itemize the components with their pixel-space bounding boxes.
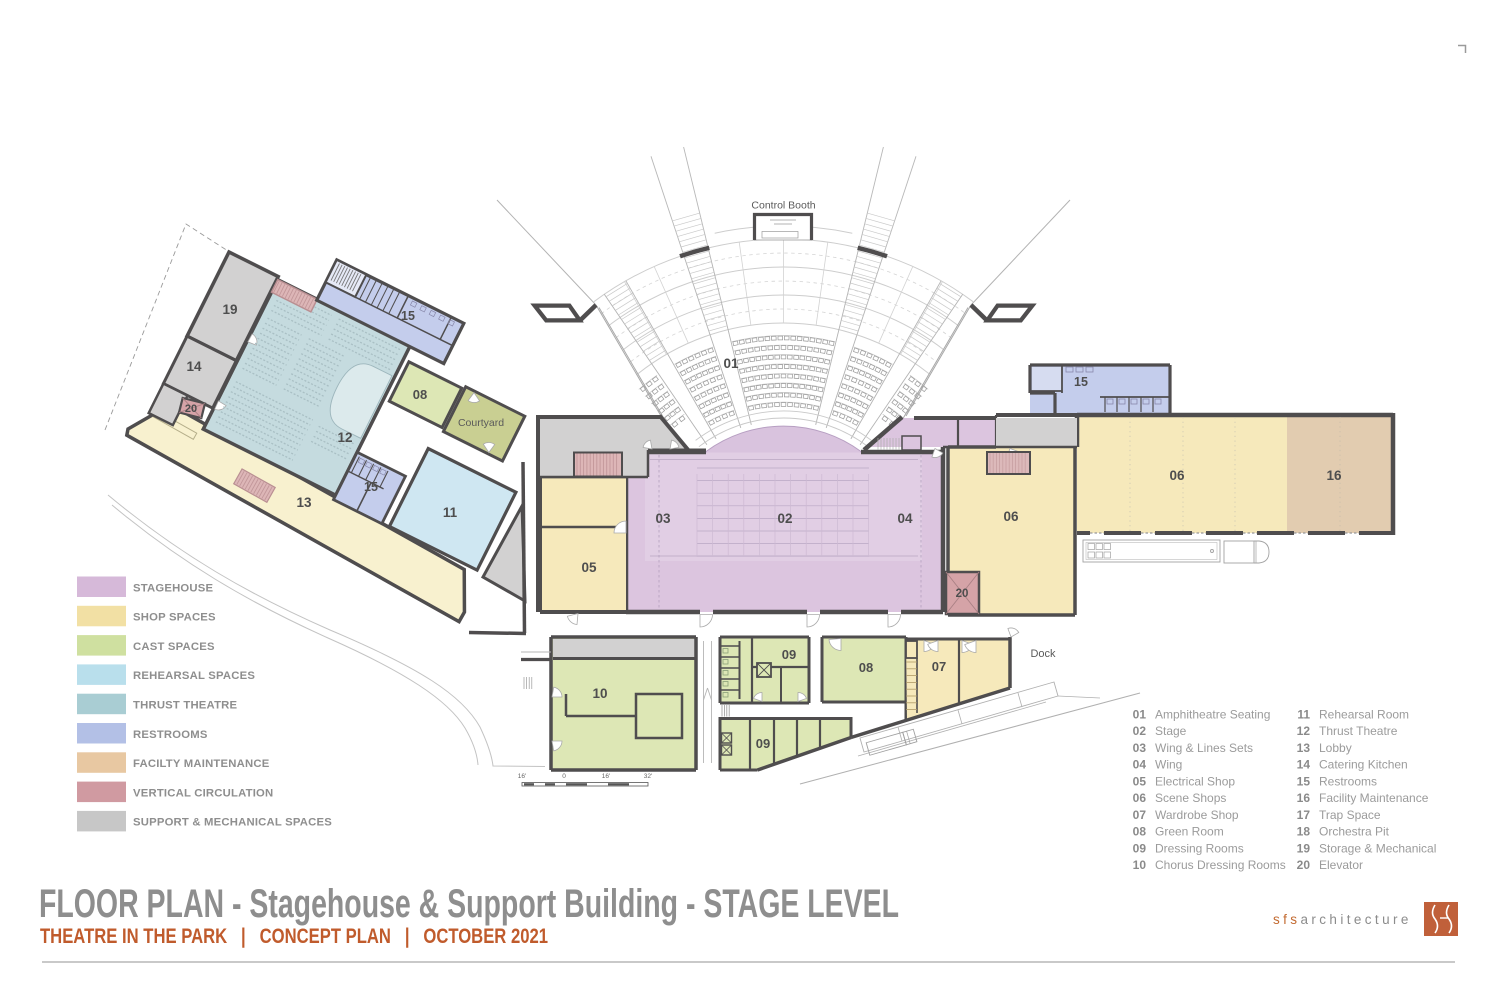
svg-text:07: 07 — [1133, 808, 1147, 822]
svg-text:15: 15 — [401, 309, 415, 323]
svg-text:VERTICAL CIRCULATION: VERTICAL CIRCULATION — [133, 787, 273, 799]
svg-text:14: 14 — [186, 359, 202, 374]
svg-text:20: 20 — [185, 403, 197, 415]
svg-text:Rehearsal Room: Rehearsal Room — [1319, 708, 1409, 722]
svg-text:Green Room: Green Room — [1155, 825, 1224, 839]
svg-text:RESTROOMS: RESTROOMS — [133, 729, 208, 741]
svg-text:STAGEHOUSE: STAGEHOUSE — [133, 582, 214, 594]
svg-text:Electrical Shop: Electrical Shop — [1155, 774, 1235, 788]
svg-text:16: 16 — [1297, 791, 1311, 805]
svg-text:15: 15 — [1074, 375, 1088, 389]
svg-text:Elevator: Elevator — [1319, 858, 1363, 872]
svg-text:16': 16' — [518, 773, 526, 780]
svg-text:06: 06 — [1169, 468, 1185, 483]
svg-text:Scene Shops: Scene Shops — [1155, 791, 1226, 805]
svg-text:15: 15 — [1297, 774, 1311, 788]
svg-text:32': 32' — [644, 773, 652, 780]
svg-text:11: 11 — [1297, 708, 1310, 722]
svg-text:REHEARSAL SPACES: REHEARSAL SPACES — [133, 670, 255, 682]
svg-text:sfsarchitecture: sfsarchitecture — [1273, 912, 1412, 927]
svg-text:Catering Kitchen: Catering Kitchen — [1319, 758, 1408, 772]
svg-text:01: 01 — [723, 356, 739, 371]
svg-text:Orchestra Pit: Orchestra Pit — [1319, 825, 1390, 839]
svg-text:06: 06 — [1003, 509, 1019, 524]
svg-text:19: 19 — [1297, 841, 1311, 855]
svg-text:Amphitheatre Seating: Amphitheatre Seating — [1155, 708, 1270, 722]
svg-text:Stage: Stage — [1155, 724, 1187, 738]
svg-text:03: 03 — [1133, 741, 1147, 755]
svg-text:17: 17 — [1297, 808, 1311, 822]
svg-text:01: 01 — [1133, 708, 1147, 722]
svg-text:08: 08 — [1133, 825, 1147, 839]
svg-text:FACILTY MAINTENANCE: FACILTY MAINTENANCE — [133, 758, 270, 770]
svg-text:Courtyard: Courtyard — [458, 417, 504, 429]
svg-text:CAST SPACES: CAST SPACES — [133, 641, 215, 653]
svg-text:Dock: Dock — [1030, 648, 1056, 660]
svg-text:11: 11 — [443, 505, 458, 520]
svg-text:02: 02 — [777, 511, 792, 526]
svg-text:Wing & Lines Sets: Wing & Lines Sets — [1155, 741, 1253, 755]
svg-text:THRUST THEATRE: THRUST THEATRE — [133, 700, 238, 712]
svg-text:07: 07 — [932, 659, 946, 674]
svg-text:08: 08 — [859, 660, 873, 675]
svg-text:20: 20 — [956, 588, 969, 600]
svg-text:SHOP SPACES: SHOP SPACES — [133, 612, 216, 624]
svg-text:Wing: Wing — [1155, 758, 1182, 772]
svg-text:03: 03 — [655, 511, 671, 526]
svg-text:13: 13 — [296, 495, 312, 510]
svg-text:Storage & Mechanical: Storage & Mechanical — [1319, 841, 1436, 855]
svg-text:09: 09 — [756, 736, 770, 751]
svg-text:Thrust Theatre: Thrust Theatre — [1319, 724, 1398, 738]
svg-text:05: 05 — [581, 560, 597, 575]
svg-text:0: 0 — [562, 773, 566, 780]
svg-text:04: 04 — [897, 511, 913, 526]
svg-text:Control Booth: Control Booth — [751, 200, 815, 212]
svg-text:04: 04 — [1133, 758, 1147, 772]
svg-text:Lobby: Lobby — [1319, 741, 1352, 755]
svg-text:Trap Space: Trap Space — [1319, 808, 1381, 822]
svg-text:10: 10 — [1133, 858, 1147, 872]
svg-text:10: 10 — [592, 686, 607, 701]
svg-text:Restrooms: Restrooms — [1319, 774, 1377, 788]
svg-text:09: 09 — [1133, 841, 1147, 855]
svg-text:06: 06 — [1133, 791, 1147, 805]
svg-text:13: 13 — [1297, 741, 1311, 755]
svg-text:THEATRE IN THE PARK | CONC: THEATRE IN THE PARK | CONCEPT PLAN | OCT… — [40, 925, 548, 948]
svg-text:SUPPORT & MECHANICAL SPACES: SUPPORT & MECHANICAL SPACES — [133, 817, 332, 829]
svg-text:20: 20 — [1297, 858, 1311, 872]
svg-text:05: 05 — [1133, 774, 1147, 788]
svg-text:14: 14 — [1297, 758, 1311, 772]
svg-text:09: 09 — [782, 647, 796, 662]
svg-text:Facility Maintenance: Facility Maintenance — [1319, 791, 1429, 805]
svg-text:Wardrobe Shop: Wardrobe Shop — [1155, 808, 1239, 822]
svg-text:Chorus Dressing Rooms: Chorus Dressing Rooms — [1155, 858, 1286, 872]
svg-text:19: 19 — [222, 302, 237, 317]
svg-text:15: 15 — [364, 480, 378, 494]
svg-text:02: 02 — [1133, 724, 1147, 738]
svg-text:18: 18 — [1297, 825, 1311, 839]
svg-text:12: 12 — [1297, 724, 1311, 738]
svg-text:FLOOR PLAN - Stagehouse & Supp: FLOOR PLAN - Stagehouse & Support Buildi… — [39, 882, 899, 926]
svg-text:12: 12 — [337, 430, 352, 445]
svg-text:Dressing Rooms: Dressing Rooms — [1155, 841, 1244, 855]
svg-text:16': 16' — [602, 773, 610, 780]
svg-text:08: 08 — [413, 387, 427, 402]
svg-text:16: 16 — [1326, 468, 1342, 483]
